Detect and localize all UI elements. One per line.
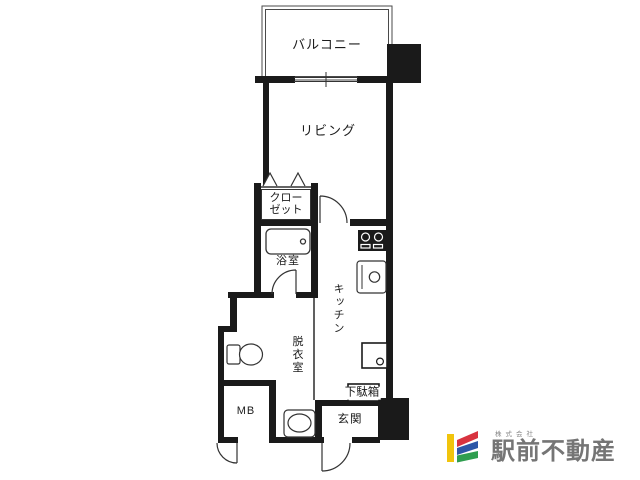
balcony-label: バルコニー <box>292 38 362 52</box>
living-label: リビング <box>300 124 356 138</box>
company-name-label: 駅前不動産 <box>491 439 616 465</box>
entrance-label: 玄関 <box>338 414 363 427</box>
meter-box-label: MB <box>237 405 256 417</box>
floor-plan-drawing <box>0 0 640 480</box>
living-door-swing <box>320 196 347 223</box>
company-logo-text: 株式会社 駅前不動産 <box>491 428 616 465</box>
stove-icon <box>358 230 386 251</box>
shoe-cabinet-label: 下駄箱 <box>344 387 381 400</box>
company-logo-mark <box>446 428 486 468</box>
toilet-icon <box>227 344 263 365</box>
entrance-side-block <box>378 398 409 440</box>
floor-plan-page: バルコニー リビング クローゼット 浴室 キッチン 脱衣室 MB 下駄箱 玄関 … <box>0 0 640 480</box>
kitchen-sink-icon <box>357 261 386 293</box>
bath-label: 浴室 <box>276 255 300 267</box>
logo-bar-yellow <box>447 434 454 462</box>
kitchen-label: キッチン <box>332 283 344 335</box>
washer-pan-icon <box>362 343 387 368</box>
closet-label: クローゼット <box>265 192 307 216</box>
bathtub-icon <box>266 229 310 254</box>
meter-box-door-swing <box>217 443 237 463</box>
washbasin-icon <box>284 410 315 437</box>
entrance-door-swing <box>322 443 350 471</box>
walls <box>218 44 421 443</box>
pipe-shaft-block <box>387 44 421 83</box>
bath-door-swing <box>272 270 296 294</box>
company-logo: 株式会社 駅前不動産 <box>446 428 616 468</box>
company-type-label: 株式会社 <box>495 428 616 438</box>
dressing-room-label: 脱衣室 <box>291 336 303 375</box>
